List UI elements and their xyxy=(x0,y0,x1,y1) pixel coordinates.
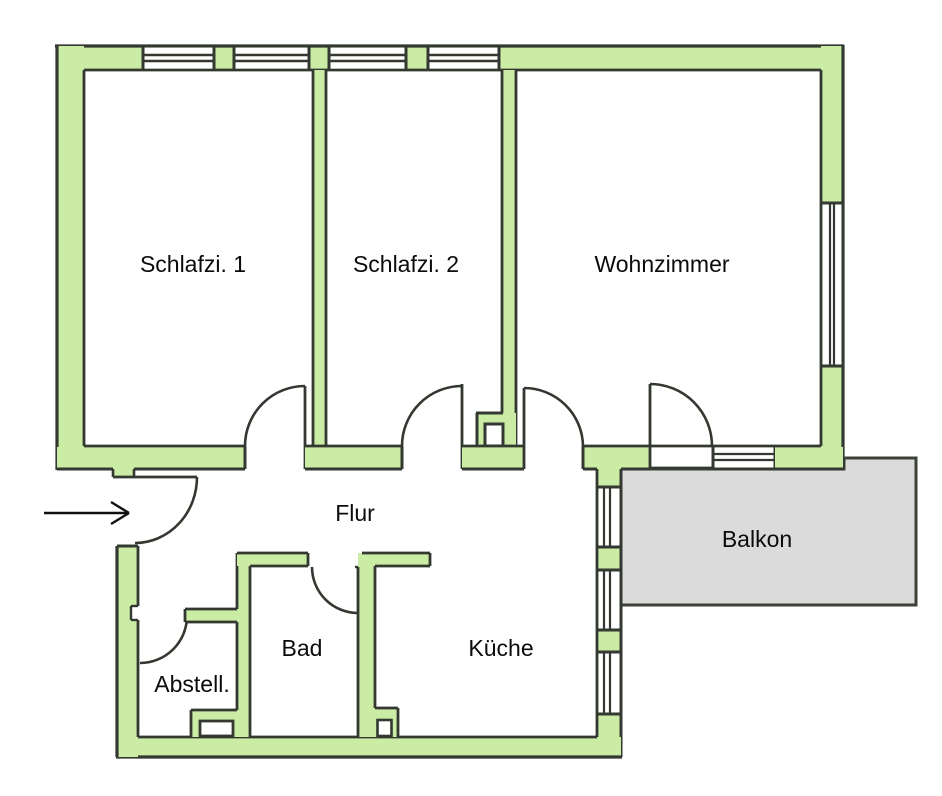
svg-text:Schlafzi. 2: Schlafzi. 2 xyxy=(353,251,459,277)
svg-text:Balkon: Balkon xyxy=(722,526,792,552)
svg-text:Bad: Bad xyxy=(282,635,323,661)
svg-text:Schlafzi. 1: Schlafzi. 1 xyxy=(140,251,246,277)
svg-text:Flur: Flur xyxy=(335,500,375,526)
svg-text:Wohnzimmer: Wohnzimmer xyxy=(594,251,729,277)
svg-text:Küche: Küche xyxy=(468,635,533,661)
svg-text:Abstell.: Abstell. xyxy=(154,671,229,697)
